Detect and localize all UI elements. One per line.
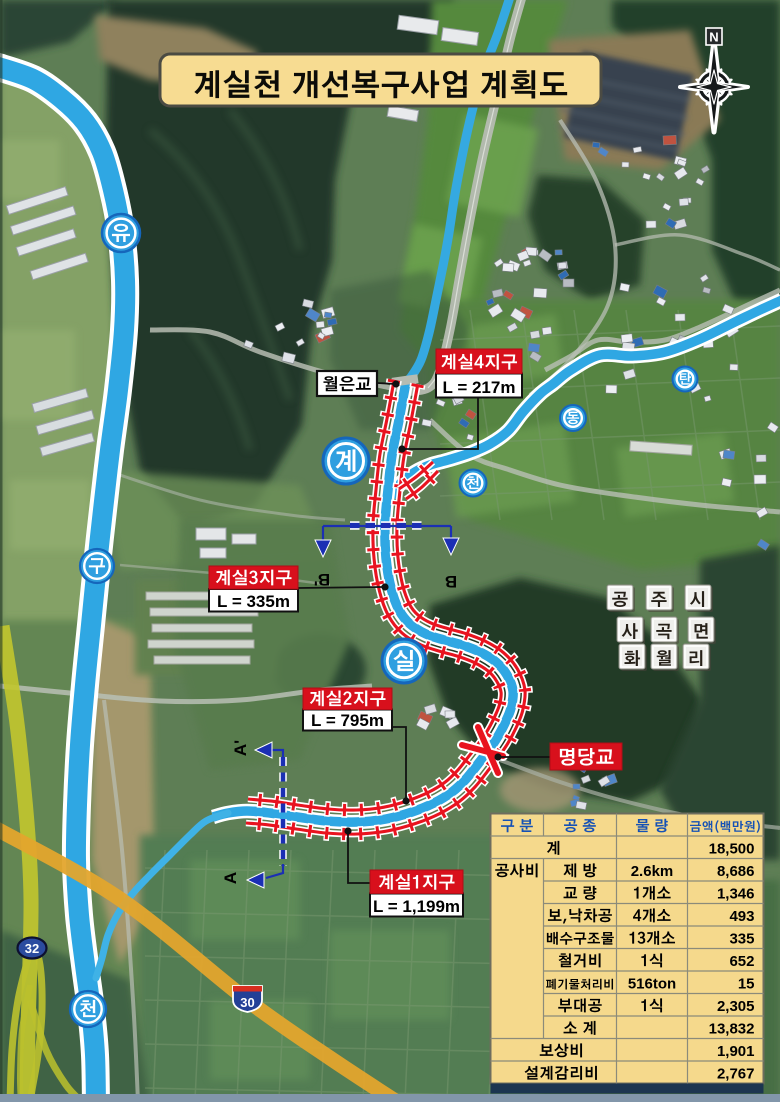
svg-text:516ton: 516ton [628,976,676,993]
svg-text:L = 795m: L = 795m [311,711,384,730]
svg-text:2,305: 2,305 [717,998,755,1015]
svg-text:L = 335m: L = 335m [217,592,290,611]
svg-text:8,686: 8,686 [717,863,755,880]
svg-text:L = 217m: L = 217m [443,378,516,397]
svg-text:N: N [709,30,718,45]
svg-text:335: 335 [729,931,754,948]
svg-text:493: 493 [729,908,754,925]
svg-text:30: 30 [240,995,254,1010]
svg-text:L = 1,199m: L = 1,199m [373,897,460,916]
svg-text:B: B [445,572,457,591]
svg-text:2,767: 2,767 [717,1066,755,1083]
svg-text:13,832: 13,832 [709,1021,755,1038]
svg-text:A: A [221,872,240,884]
svg-text:1,901: 1,901 [717,1043,755,1060]
svg-text:2.6km: 2.6km [631,863,674,880]
svg-text:B': B' [314,570,330,589]
svg-text:1,346: 1,346 [717,886,755,903]
svg-text:15: 15 [738,976,755,993]
svg-text:18,500: 18,500 [709,841,755,858]
svg-text:32: 32 [25,941,39,956]
svg-text:652: 652 [729,953,754,970]
svg-text:A': A' [231,740,250,756]
